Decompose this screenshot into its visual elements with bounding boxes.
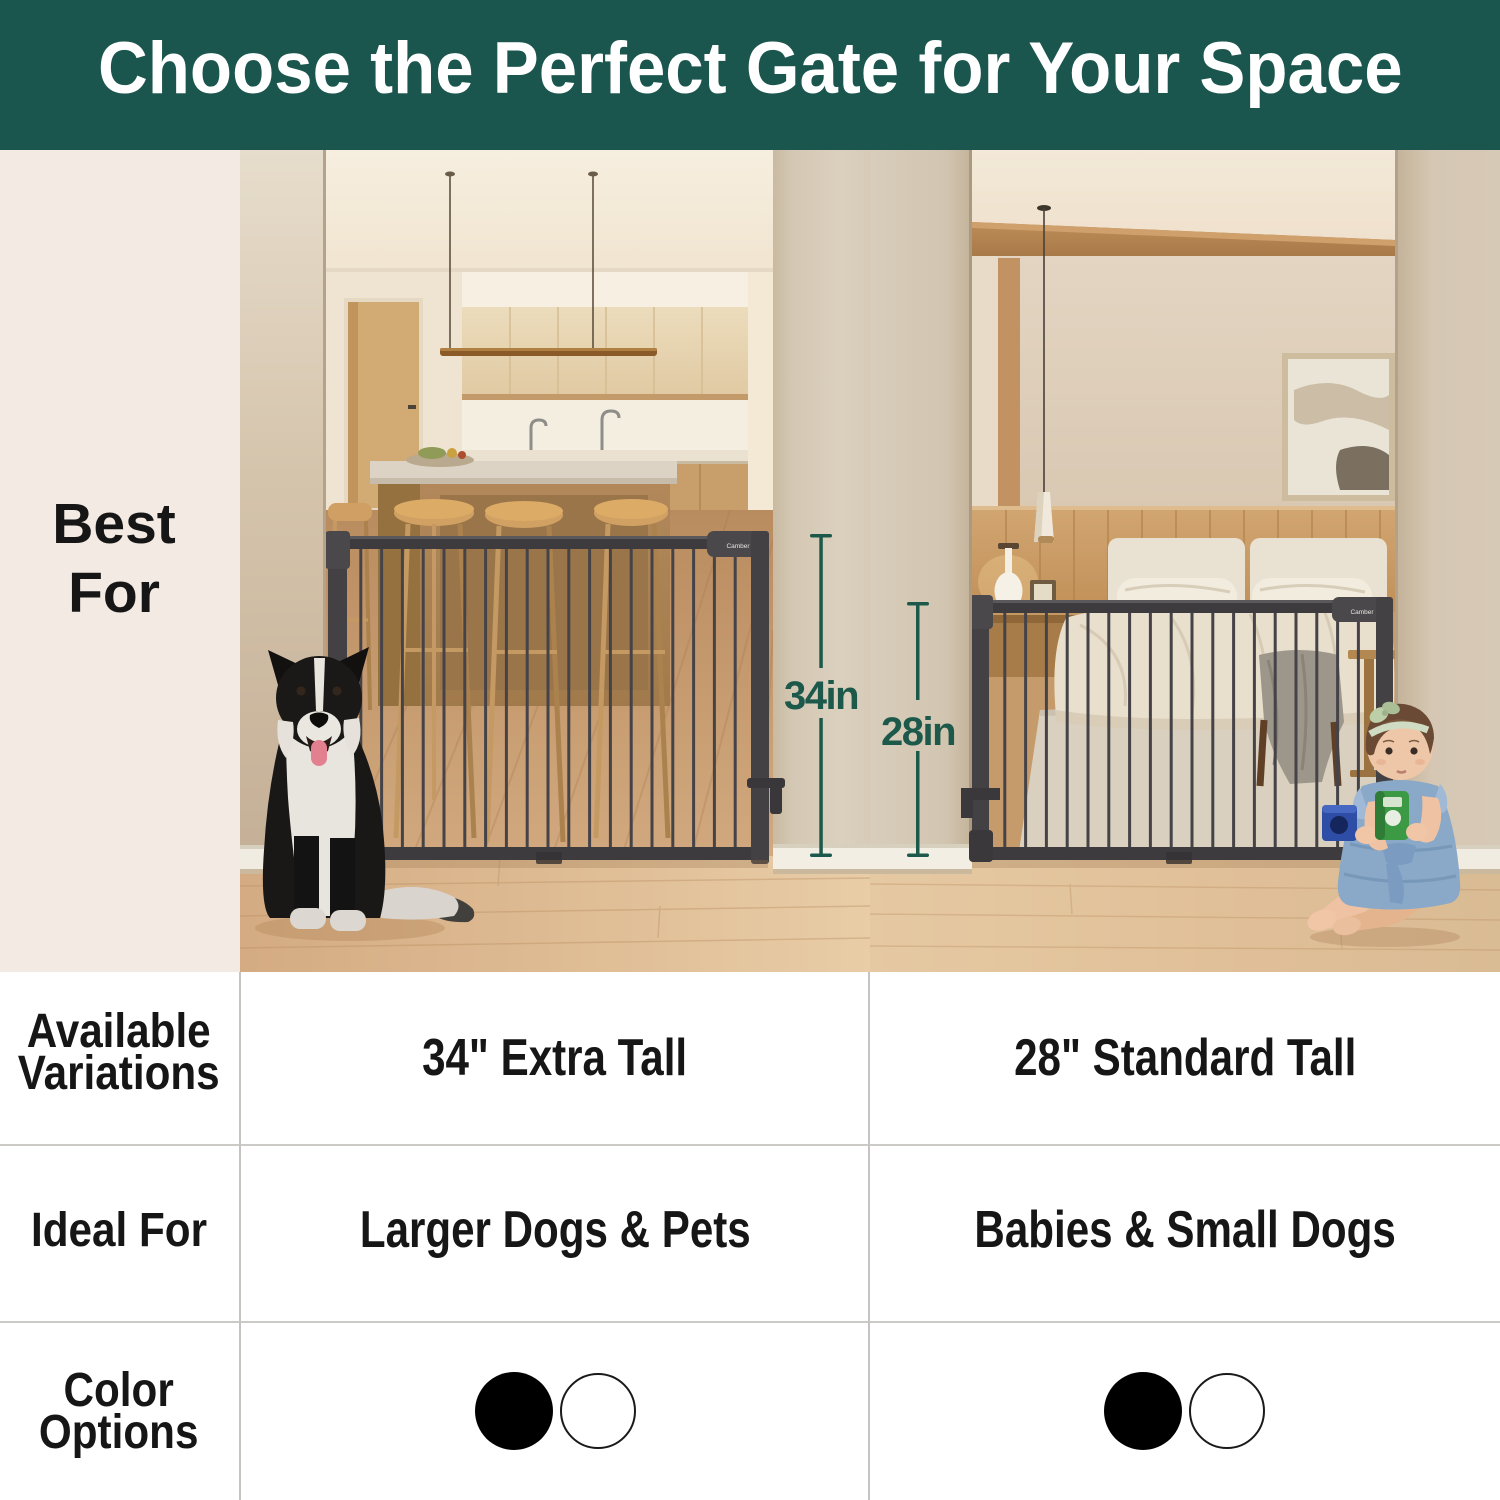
svg-text:28in: 28in bbox=[881, 710, 955, 754]
svg-text:Camber: Camber bbox=[1350, 609, 1374, 616]
svg-text:Camber: Camber bbox=[726, 543, 750, 550]
svg-text:34in: 34in bbox=[784, 674, 858, 718]
